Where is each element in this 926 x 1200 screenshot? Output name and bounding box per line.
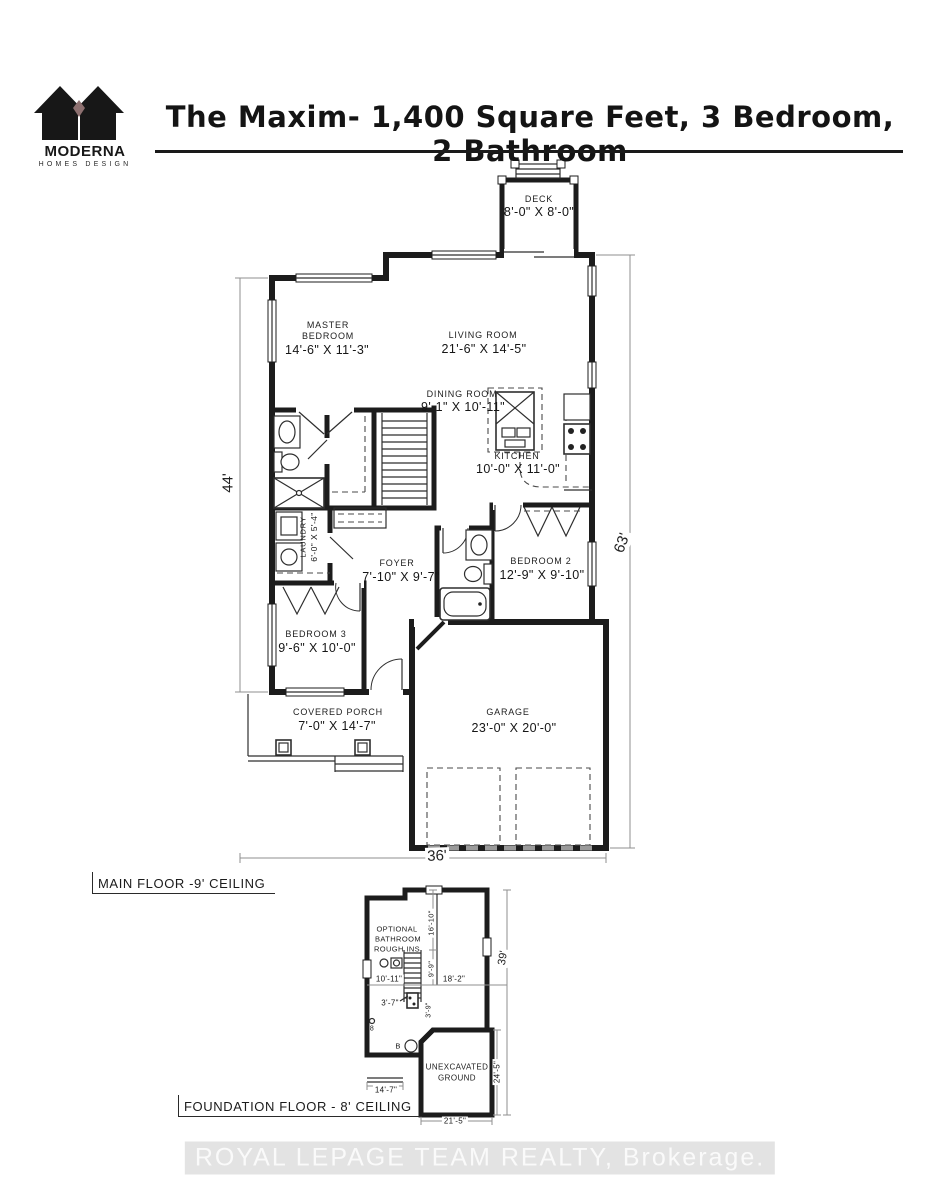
optional-bath-label-3: ROUGH INS (374, 945, 420, 954)
floor-plan-page: The Maxim- 1,400 Square Feet, 3 Bedroom,… (0, 0, 926, 1200)
bathtub (440, 588, 490, 620)
foundation-caption: FOUNDATION FLOOR - 8' CEILING (178, 1095, 422, 1117)
ensuite-fixtures (274, 416, 324, 508)
bedroom2-dims: 12'-9" X 9'-10" (500, 568, 585, 582)
dim-3-9: 3'-9" (426, 1002, 433, 1017)
title-underline (155, 150, 903, 153)
bedroom3-label: BEDROOM 3 (285, 629, 346, 639)
master-bedroom-label-1: MASTER (307, 320, 349, 330)
bedroom2-closet (524, 507, 580, 536)
brand-tagline: HOMES DESIGN (30, 161, 140, 168)
garage-walls (412, 622, 606, 848)
dining-room-label: DINING ROOM (427, 389, 498, 399)
fridge (564, 394, 590, 420)
main-floor-caption: MAIN FLOOR -9' CEILING (92, 872, 275, 894)
kitchen-label: KITCHEN (494, 451, 539, 461)
master-bedroom-dims: 14'-6" X 11'-3" (285, 343, 369, 357)
porch-foundation (367, 1078, 403, 1082)
garage-dims: 23'-0" X 20'-0" (472, 721, 557, 735)
brokerage-watermark: ROYAL LEPAGE TEAM REALTY, Brokerage. (185, 1142, 775, 1175)
deck-dims: 8'-0" X 8'-0" (504, 205, 574, 219)
bedroom2-label: BEDROOM 2 (510, 556, 571, 566)
foyer-label: FOYER (379, 558, 414, 568)
covered-porch-dims: 7'-0" X 14'-7" (298, 719, 376, 733)
dim-18-2: 18'-2" (441, 975, 467, 984)
dim-16-10: 16'-10" (427, 908, 436, 937)
dim-9-9: 9'-9" (427, 959, 436, 979)
living-room-dims: 21'-6" X 14'-5" (442, 342, 527, 356)
unexcavated-label-2: GROUND (438, 1074, 476, 1083)
laundry-label: LAUNDRY (299, 516, 308, 557)
stove (564, 424, 590, 454)
main-floor-plan (235, 160, 635, 863)
dim-44ft: 44' (220, 473, 237, 493)
dim-24-5: 24'-5" (493, 1059, 502, 1085)
laundry-dims: 6'-0" X 5'-4" (309, 512, 319, 561)
page-title: The Maxim- 1,400 Square Feet, 3 Bedroom,… (160, 100, 900, 168)
unexcavated-walls (421, 1030, 492, 1115)
walkin-closet (332, 416, 365, 492)
hall-closet (338, 514, 382, 522)
living-room-label: LIVING ROOM (449, 330, 518, 340)
deck-label: DECK (525, 194, 553, 204)
furnace (407, 993, 418, 1008)
kitchen-dims: 10'-0" X 11'-0" (476, 462, 560, 476)
marker-8: 8 (370, 1026, 374, 1033)
moderna-logo-icon (34, 86, 124, 140)
patio-door (504, 249, 574, 260)
dim-14-7: 14'-7" (373, 1086, 399, 1095)
foyer-dims: 7'-10" X 9'-7" (362, 570, 440, 584)
optional-bath-label-2: BATHROOM (375, 935, 421, 944)
staircase (382, 413, 427, 505)
bedroom3-dims: 9'-6" X 10'-0" (278, 641, 356, 655)
brand-name: MODERNA (30, 143, 140, 160)
unexcavated-label-1: UNEXCAVATED (426, 1063, 489, 1072)
optional-bath-label-1: OPTIONAL (376, 925, 417, 934)
master-bedroom-label-2: BEDROOM (302, 331, 354, 341)
garage-label: GARAGE (486, 707, 529, 717)
dim-10-11: 10'-11" (374, 975, 404, 984)
floor-plan-linework (0, 0, 926, 1200)
porch-structure (248, 694, 403, 772)
dim-36ft: 36' (425, 847, 449, 865)
bathroom-fixtures (440, 530, 492, 620)
dim-21-5: 21'-5" (442, 1117, 468, 1126)
dim-3-7: 3'-7" (381, 999, 398, 1008)
marker-b: B (395, 1042, 400, 1051)
covered-porch-label: COVERED PORCH (293, 707, 383, 717)
dining-room-dims: 9'-1" X 10'-11" (421, 400, 505, 414)
garage-doors (427, 768, 592, 848)
